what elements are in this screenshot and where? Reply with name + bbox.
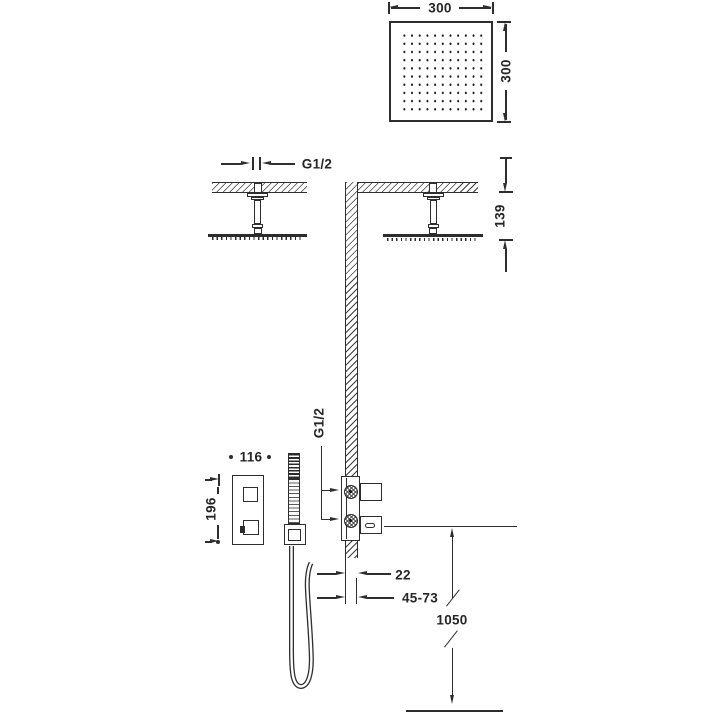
hand-shower-bracket-socket [288,529,301,541]
dim-ceiling-thread-line-left [221,163,241,164]
dim-drop-line-bottom [505,249,506,272]
dim-height-line-top [452,536,453,598]
dim-drop-arrow-bottom [503,240,507,249]
dim-height-break-bottom [444,630,458,647]
valve-thread-leader-line [321,446,322,520]
dim-ceiling-thread-tick-right [259,157,260,170]
dim-mixer-height-line-bottom [217,525,218,539]
dim-depth-arrow-left [336,595,345,599]
technical-drawing-canvas: 300 300 G1/2 139 116 [0,0,720,720]
right-shower-plate-nozzles [387,238,479,241]
left-arm-shaft [254,200,261,224]
dim-mixer-height-label: 196 [204,497,219,520]
dim-offset-line-right [367,573,391,574]
dim-depth-label: 45-73 [402,591,438,606]
hand-shower-head [288,453,300,479]
dim-ceiling-thread-arrow-right [262,161,271,165]
dim-drop-line-top [505,158,506,183]
valve-thread-arrow-top [330,488,339,492]
dim-ceiling-thread-arrow-left [241,161,250,165]
dim-head-height-arrow-top [503,22,507,31]
mixer-volume-control [243,487,258,502]
mixer-temperature-control [243,520,259,535]
dim-offset-label: 22 [395,567,411,582]
dim-mixer-height-dot-bottom [216,540,220,544]
ceiling-hatch-right [358,182,478,193]
dim-depth-line-left [317,597,336,598]
dim-drop-arrow-top [503,183,507,192]
dim-mixer-width-label: 116 [240,449,263,464]
dim-head-height-label: 300 [499,59,514,82]
dim-depth-line-right [367,597,394,598]
right-arm-shaft [430,200,437,224]
valve-outlet-slot [365,523,375,528]
dim-height-label: 1050 [436,613,467,628]
mixer-temperature-safety-button [240,526,245,533]
dim-head-width-arrow-right [483,5,492,9]
dim-drop-label: 139 [493,204,508,227]
dim-height-arrow-top [450,528,454,537]
dim-mixer-height-arrow-top [210,477,219,481]
dim-mixer-height-line-top [217,487,218,494]
dim-ceiling-thread-line-right [271,163,295,164]
floor-line [406,710,503,713]
valve-knob-top-center [349,490,352,493]
hand-shower-handle [288,479,300,524]
valve-thread-arrow-bottom [330,517,339,521]
dim-offset-arrow-right [358,571,367,575]
ext-line-wall-face [345,556,346,604]
dim-depth-arrow-right [358,595,367,599]
dim-offset-line-left [317,573,336,574]
dim-head-width-label: 300 [428,1,451,16]
ext-line-wall-back [356,578,357,604]
left-arm-ceiling-pipe [254,183,262,193]
valve-thread-label: G1/2 [312,408,327,438]
dim-head-width-tick-right [492,2,493,14]
right-arm-ceiling-pipe [429,183,437,193]
dim-mixer-width-dot-left [229,455,233,459]
dim-ceiling-thread-label: G1/2 [302,157,332,172]
valve-knob-bottom-center [349,519,352,522]
dim-height-arrow-bottom [450,695,454,704]
right-arm-base [429,228,437,234]
dim-mixer-width-dot-right [267,455,271,459]
dim-ceiling-thread-tick-left [252,157,253,170]
dim-head-height-arrow-bottom [503,113,507,122]
spray-nozzle-dot-grid [399,30,486,116]
dim-offset-arrow-left [336,571,345,575]
dim-head-width-arrow-left [389,5,398,9]
valve-outlet-top [360,483,382,501]
hand-shower-hose [272,538,320,698]
dim-height-line-bottom [452,648,453,696]
left-shower-plate-nozzles [212,237,303,240]
